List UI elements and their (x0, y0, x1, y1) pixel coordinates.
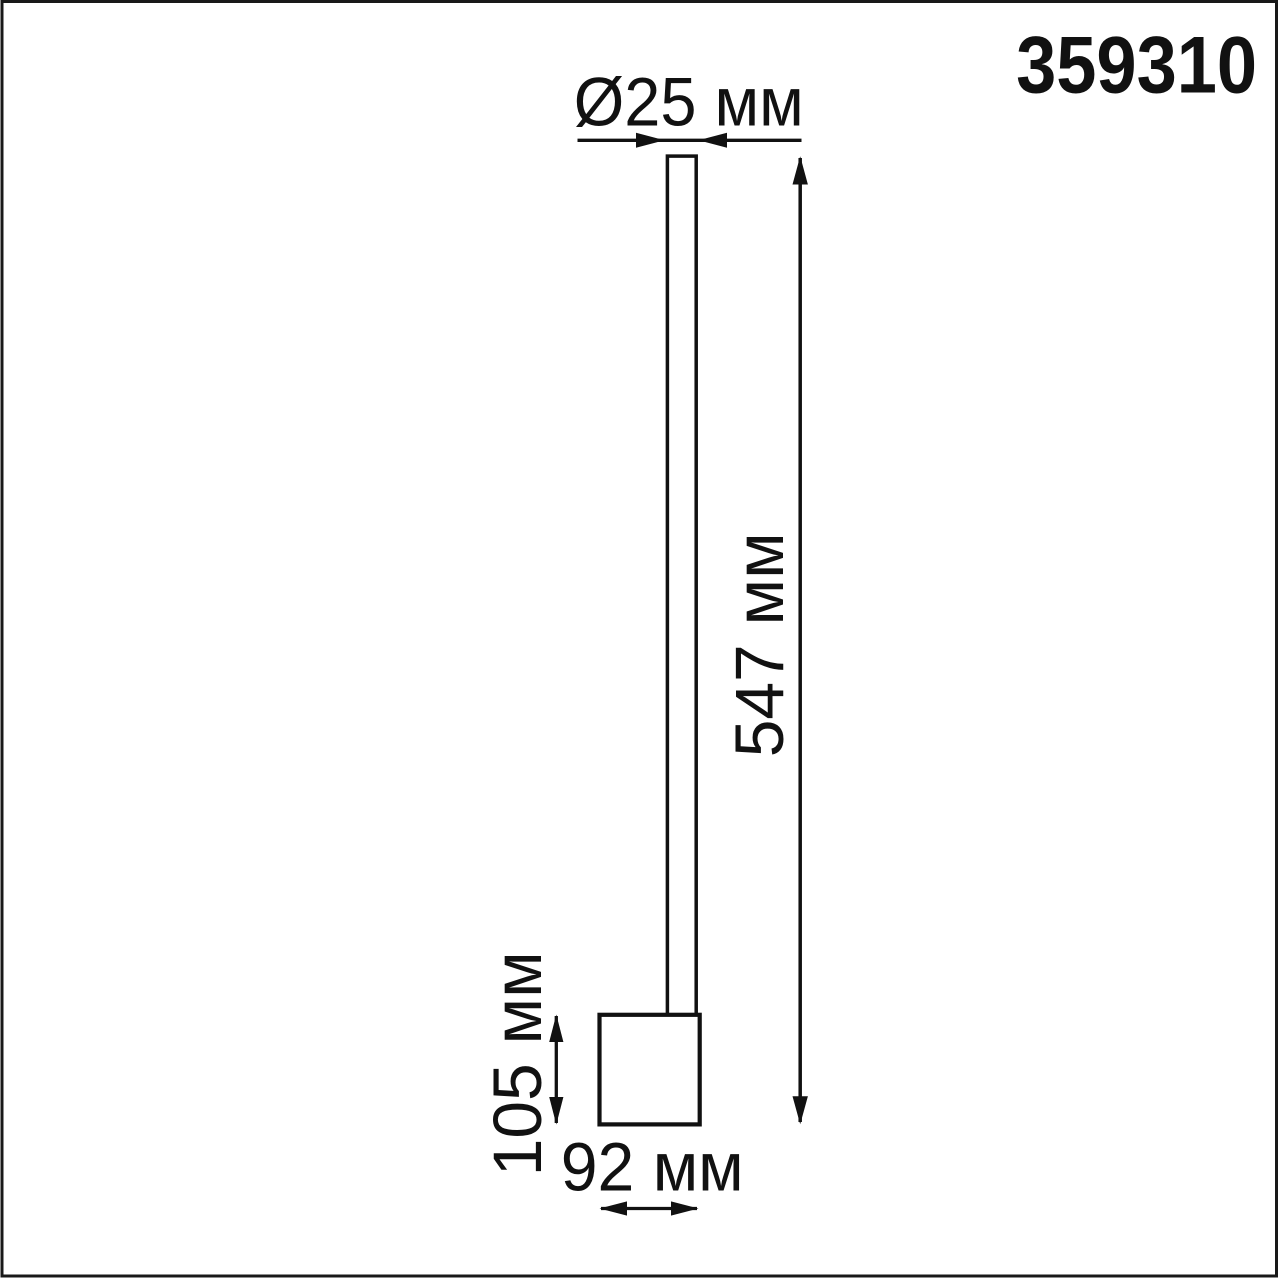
svg-text:359310: 359310 (1016, 21, 1257, 111)
svg-text:92 мм: 92 мм (561, 1129, 744, 1206)
svg-text:547 мм: 547 мм (721, 532, 798, 757)
svg-text:105 мм: 105 мм (479, 951, 556, 1176)
svg-text:Ø25 мм: Ø25 мм (574, 64, 804, 141)
